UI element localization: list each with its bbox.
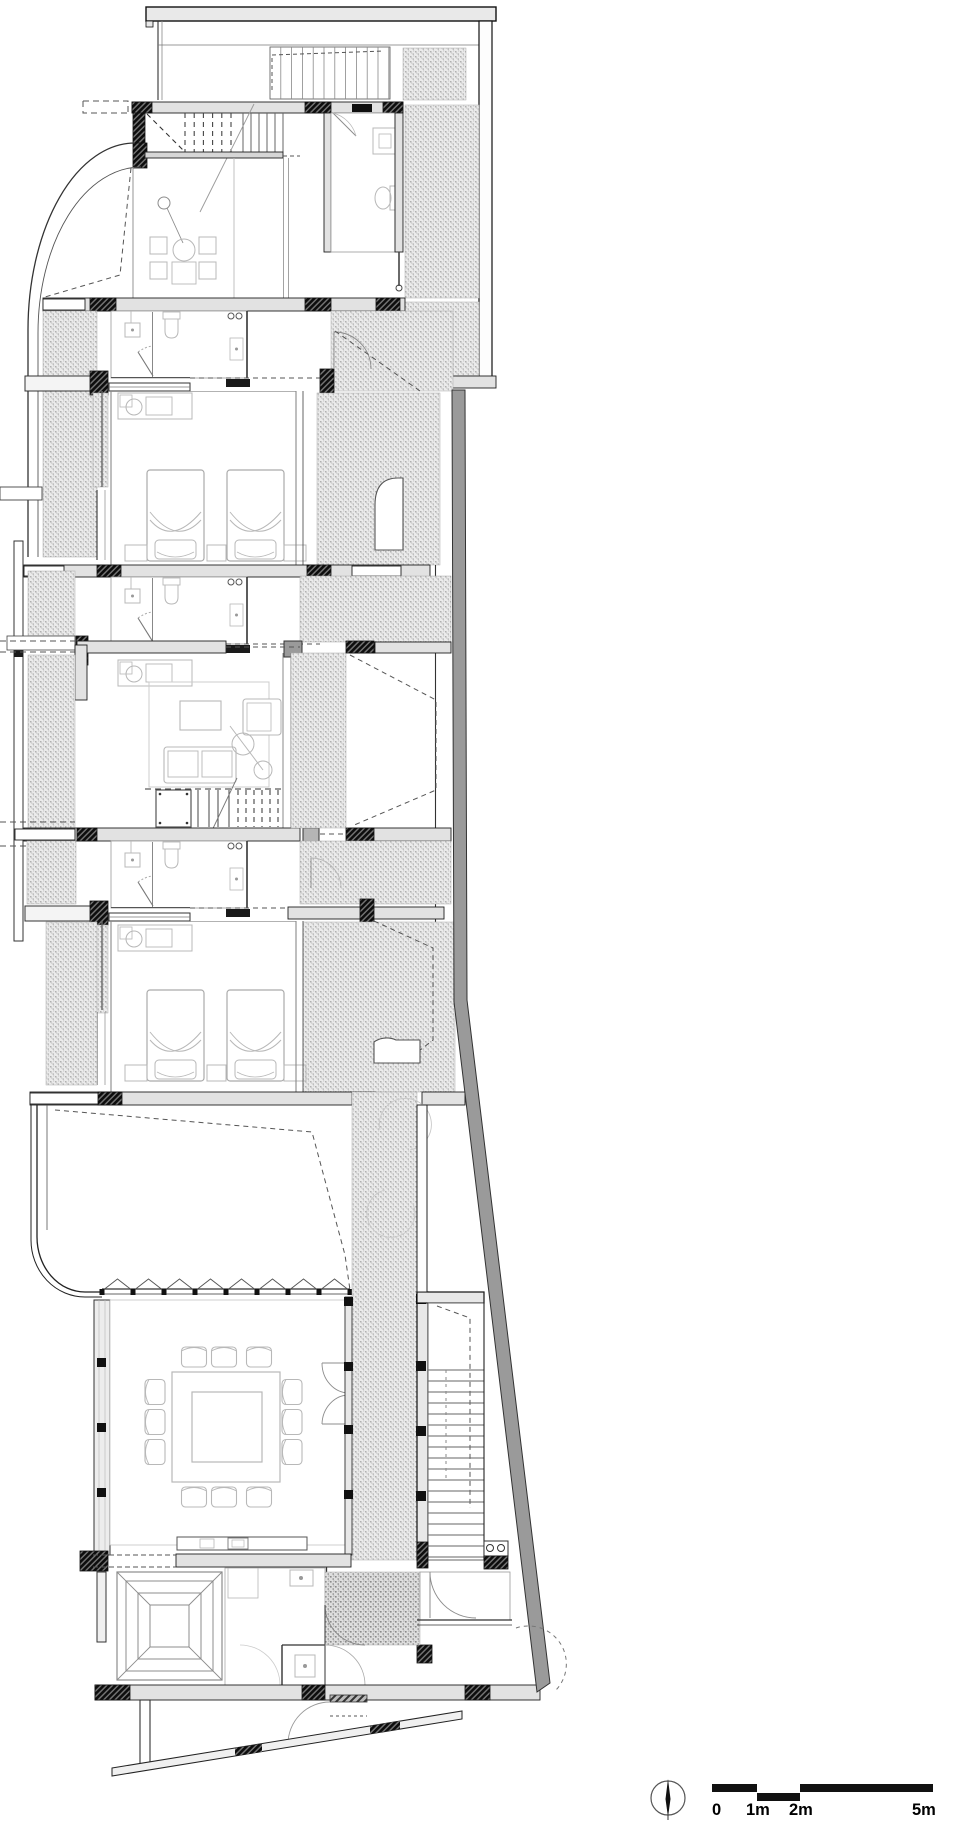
svg-text:2m: 2m xyxy=(789,1801,813,1819)
svg-text:0: 0 xyxy=(712,1801,721,1819)
svg-text:5m: 5m xyxy=(912,1801,936,1819)
svg-text:1m: 1m xyxy=(746,1801,770,1819)
